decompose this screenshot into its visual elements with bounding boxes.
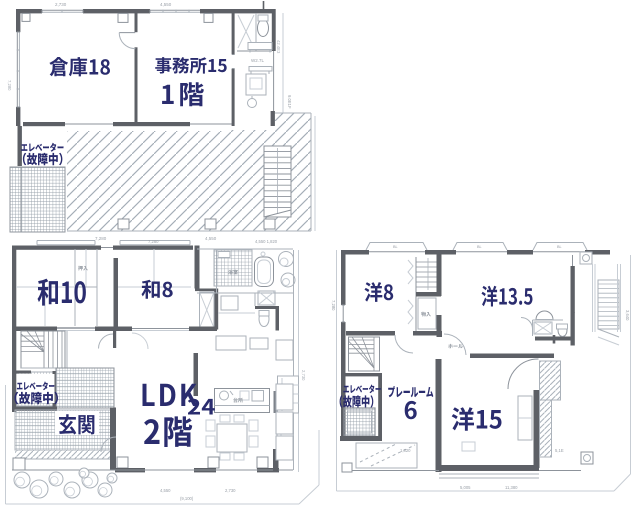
svg-text:11,380: 11,380 bbox=[505, 485, 518, 490]
svg-text:7,280: 7,280 bbox=[7, 80, 12, 91]
svg-text:4,550 1,820: 4,550 1,820 bbox=[255, 239, 278, 244]
svg-text:BL: BL bbox=[393, 245, 398, 249]
svg-text:W2.7L: W2.7L bbox=[251, 58, 265, 63]
svg-text:7,280: 7,280 bbox=[95, 236, 107, 241]
svg-text:1,820: 1,820 bbox=[400, 448, 411, 453]
svg-text:(9,100): (9,100) bbox=[180, 496, 194, 501]
svg-text:9.0E1F: 9.0E1F bbox=[287, 95, 292, 109]
svg-text:4,550: 4,550 bbox=[160, 2, 172, 7]
svg-text:2,730: 2,730 bbox=[225, 488, 236, 493]
svg-text:5,1E: 5,1E bbox=[555, 448, 564, 453]
svg-text:5,005: 5,005 bbox=[460, 485, 471, 490]
svg-text:BL: BL bbox=[477, 245, 482, 249]
svg-text:7,280: 7,280 bbox=[331, 300, 336, 311]
svg-text:3,640: 3,640 bbox=[625, 310, 630, 321]
svg-text:7,280: 7,280 bbox=[148, 239, 159, 244]
svg-text:4,550: 4,550 bbox=[160, 488, 171, 493]
svg-text:4,550: 4,550 bbox=[205, 236, 217, 241]
svg-text:2,730: 2,730 bbox=[55, 2, 67, 7]
svg-text:2,730: 2,730 bbox=[301, 370, 306, 381]
svg-text:42.4E3: 42.4E3 bbox=[276, 40, 281, 54]
svg-text:BL: BL bbox=[557, 245, 562, 249]
